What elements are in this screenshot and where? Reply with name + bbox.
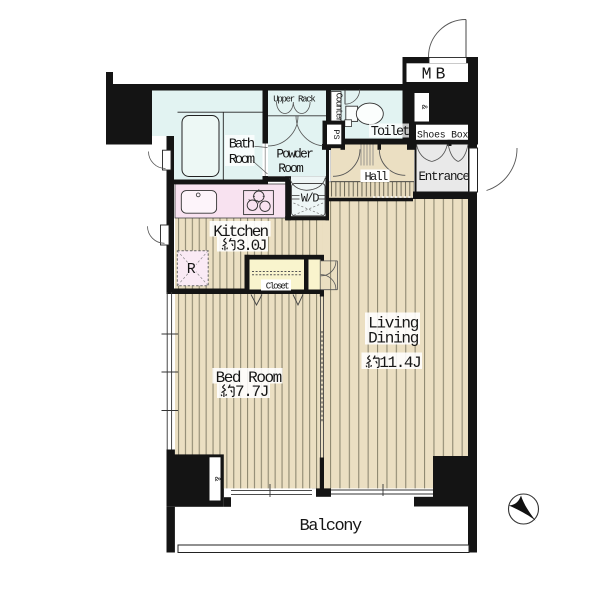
svg-text:Counter: Counter <box>334 93 344 123</box>
svg-text:Powder: Powder <box>276 146 313 161</box>
svg-text:MB: MB <box>422 65 450 84</box>
svg-text:Closet: Closet <box>266 282 290 292</box>
svg-text:Entrance: Entrance <box>418 170 469 184</box>
svg-text:Upper Rack: Upper Rack <box>273 94 315 104</box>
svg-text:PS: PS <box>331 129 341 139</box>
svg-text:Balcony: Balcony <box>299 517 362 536</box>
svg-text:Dining: Dining <box>368 329 419 347</box>
svg-text:11.4J: 11.4J <box>379 354 420 372</box>
svg-text:R: R <box>187 261 196 278</box>
svg-text:Shoes Box: Shoes Box <box>417 130 468 141</box>
svg-text:Bath: Bath <box>229 137 255 153</box>
svg-text:&: & <box>212 477 221 482</box>
svg-text:&: & <box>419 105 428 110</box>
svg-text:3.0J: 3.0J <box>236 237 266 255</box>
svg-text:Room: Room <box>278 161 303 176</box>
svg-text:W/D: W/D <box>301 191 319 205</box>
svg-text:7.7J: 7.7J <box>235 383 268 401</box>
svg-text:Hall: Hall <box>365 170 389 184</box>
svg-text:Room: Room <box>229 152 255 168</box>
svg-text:Toilet: Toilet <box>371 125 410 140</box>
